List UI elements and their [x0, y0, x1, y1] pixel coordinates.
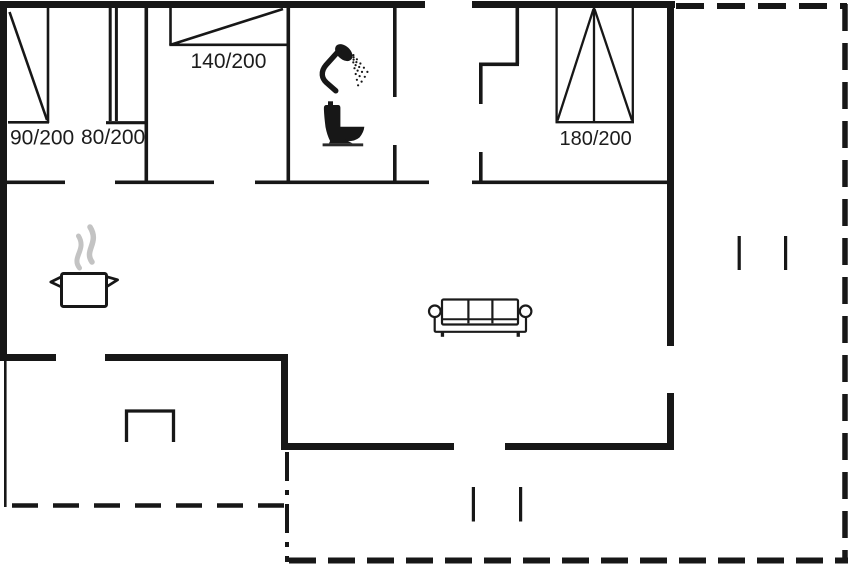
svg-text:90/200: 90/200	[10, 127, 74, 150]
svg-text:80/200: 80/200	[81, 126, 145, 149]
svg-text:180/200: 180/200	[560, 128, 632, 150]
svg-text:140/200: 140/200	[191, 50, 267, 73]
